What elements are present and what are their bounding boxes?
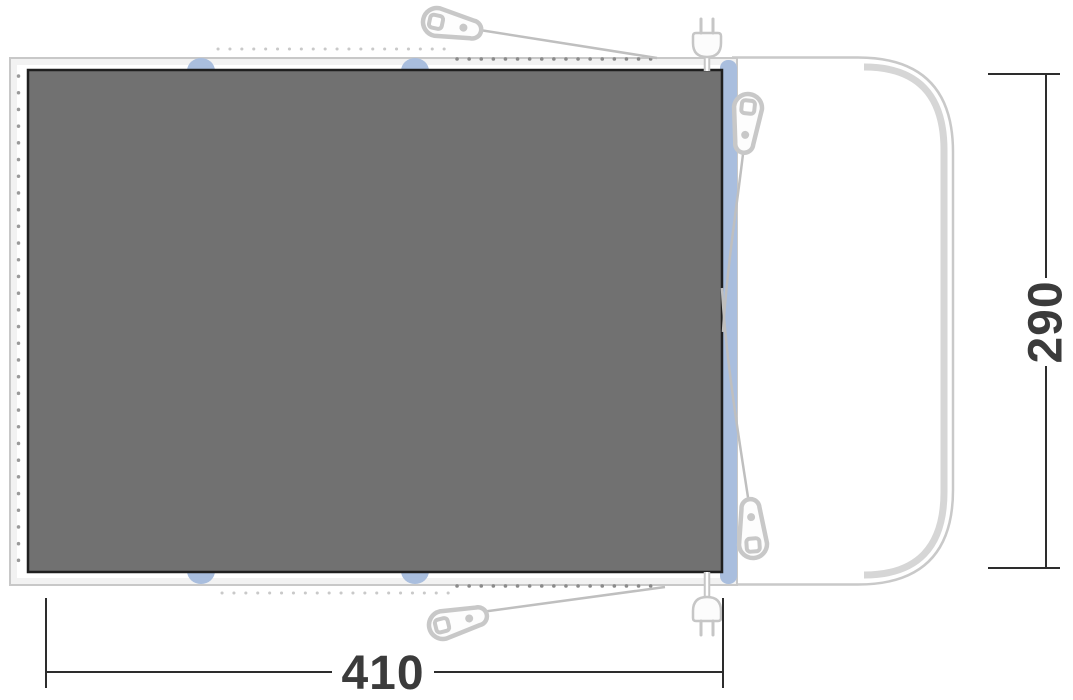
dimension-width-label: 410 bbox=[337, 646, 429, 700]
tent-peg-icon bbox=[736, 498, 768, 559]
dimension-height-label: 290 bbox=[1019, 280, 1073, 363]
vehicle-outline bbox=[732, 58, 953, 585]
tent-peg-icon bbox=[420, 5, 484, 45]
tent-peg-icon bbox=[729, 93, 763, 155]
groundsheet bbox=[28, 70, 722, 572]
guy-rope-top-left bbox=[467, 28, 657, 58]
floorplan-diagram: 410 290 bbox=[0, 0, 1073, 700]
tent-peg-icon bbox=[426, 601, 490, 642]
diagram-canvas bbox=[0, 0, 1073, 700]
vehicle-rail-band bbox=[864, 67, 944, 575]
guy-rope-bottom-left bbox=[474, 587, 665, 613]
vehicle-body-line bbox=[732, 58, 953, 585]
